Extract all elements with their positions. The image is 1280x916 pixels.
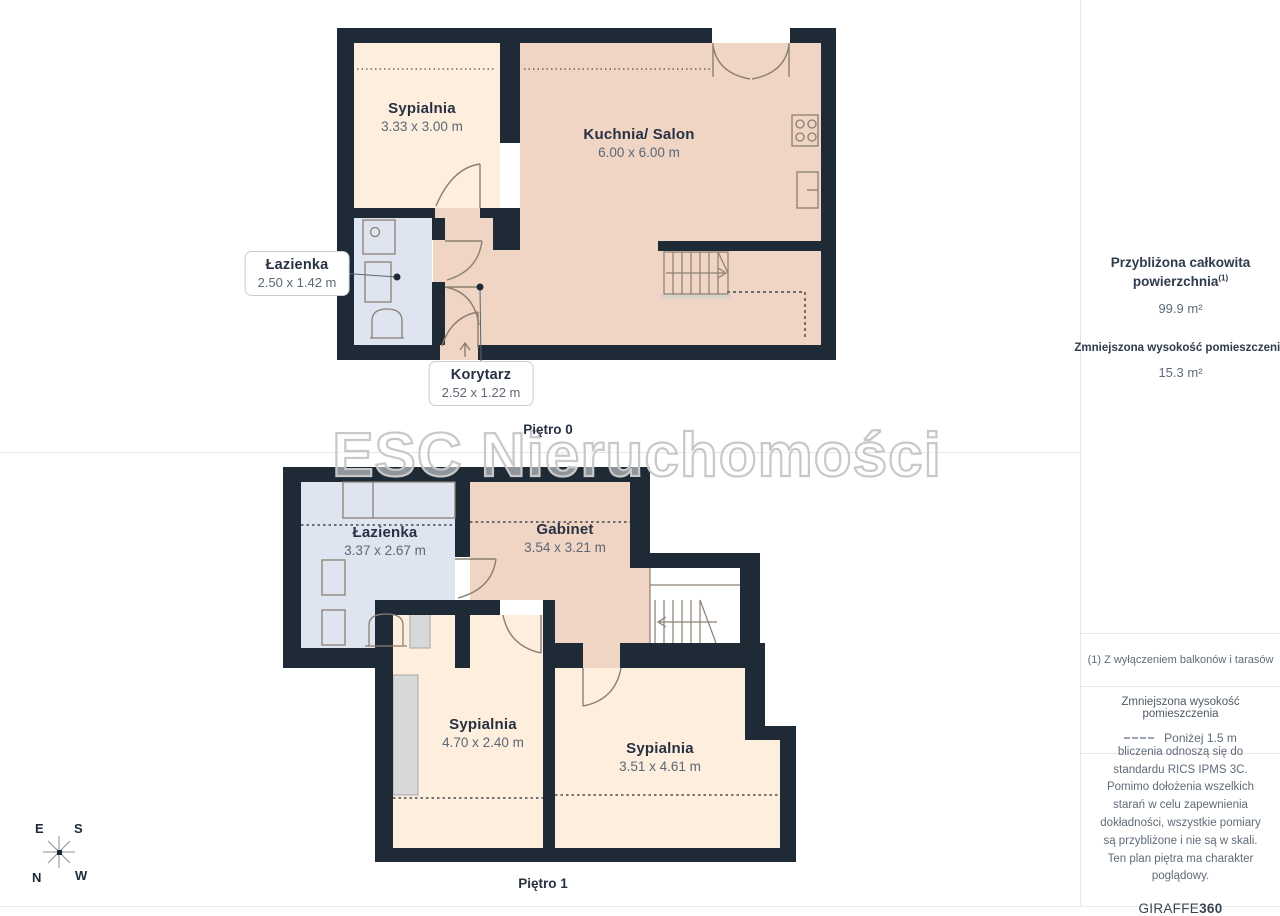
floor0-kitchen-living-area bbox=[520, 43, 821, 345]
disclaimer-text: bliczenia odnoszą się do standardu RICS … bbox=[1093, 744, 1268, 887]
room-dimensions: 2.50 x 1.42 m bbox=[258, 275, 337, 290]
reduced-height-dash-icon bbox=[1124, 737, 1154, 739]
washing-machine-icon bbox=[410, 610, 430, 648]
compass-south-label: S bbox=[74, 821, 83, 836]
reduced-height-title: Zmniejszona wysokość pomieszczenia bbox=[1074, 340, 1280, 357]
brand-logo: GIRAFFE360 bbox=[1138, 901, 1222, 916]
room-label-floor1-bedroom-right: Sypialnia 3.51 x 4.61 m bbox=[619, 740, 701, 774]
room-label-floor0-bathroom: Łazienka 2.50 x 1.42 m bbox=[245, 251, 350, 296]
room-name: Sypialnia bbox=[619, 740, 701, 757]
room-label-floor0-kitchen-living: Kuchnia/ Salon 6.00 x 6.00 m bbox=[583, 126, 694, 160]
floor0-bathroom-area bbox=[354, 218, 432, 345]
room-name: Łazienka bbox=[344, 524, 426, 541]
compass-north-label: N bbox=[32, 870, 41, 885]
room-dimensions: 3.51 x 4.61 m bbox=[619, 759, 701, 774]
floor1-landing-area bbox=[630, 568, 650, 643]
room-name: Sypialnia bbox=[442, 716, 524, 733]
floor-plan-page: { "page": { "watermark": "ESC Nieruchomo… bbox=[0, 0, 1280, 906]
room-name: Gabinet bbox=[524, 521, 606, 538]
total-area-title: Przybliżona całkowita powierzchnia(1) bbox=[1111, 253, 1251, 292]
floor0-hallway-opening bbox=[500, 250, 520, 345]
room-label-floor0-hallway: Korytarz 2.52 x 1.22 m bbox=[429, 361, 534, 406]
compass-icon: E S N W bbox=[18, 810, 102, 890]
legend-title: Zmniejszona wysokość pomieszczenia bbox=[1093, 696, 1268, 720]
room-dimensions: 6.00 x 6.00 m bbox=[583, 145, 694, 160]
room-dimensions: 4.70 x 2.40 m bbox=[442, 735, 524, 750]
floor0-caption: Piętro 0 bbox=[523, 422, 573, 437]
room-name: Kuchnia/ Salon bbox=[583, 126, 694, 143]
legend-row: Poniżej 1.5 m bbox=[1124, 731, 1237, 745]
brand-suffix: 360 bbox=[1199, 901, 1222, 916]
total-area-value: 99.9 m² bbox=[1158, 301, 1202, 316]
floor0-room-areas bbox=[354, 43, 821, 360]
room-dimensions: 3.33 x 3.00 m bbox=[381, 119, 463, 134]
compass-west-label: W bbox=[75, 868, 88, 883]
floor1-caption: Piętro 1 bbox=[518, 876, 568, 891]
wardrobe-icon bbox=[393, 675, 418, 795]
room-label-floor0-bedroom: Sypialnia 3.33 x 3.00 m bbox=[381, 100, 463, 134]
room-name: Korytarz bbox=[442, 367, 521, 383]
room-name: Łazienka bbox=[258, 257, 337, 273]
room-dimensions: 2.52 x 1.22 m bbox=[442, 385, 521, 400]
reduced-height-value: 15.3 m² bbox=[1158, 365, 1202, 380]
room-label-floor1-bathroom: Łazienka 3.37 x 2.67 m bbox=[344, 524, 426, 558]
sidebar-disclaimer-section: bliczenia odnoszą się do standardu RICS … bbox=[1081, 753, 1280, 906]
room-dimensions: 3.37 x 2.67 m bbox=[344, 543, 426, 558]
info-sidebar: Przybliżona całkowita powierzchnia(1) 99… bbox=[1080, 0, 1280, 906]
plans-area: Sypialnia 3.33 x 3.00 m Kuchnia/ Salon 6… bbox=[0, 0, 1080, 906]
room-dimensions: 3.54 x 3.21 m bbox=[524, 540, 606, 555]
room-name: Sypialnia bbox=[381, 100, 463, 117]
room-label-floor1-bedroom-left: Sypialnia 4.70 x 2.40 m bbox=[442, 716, 524, 750]
total-area-title-line1: Przybliżona całkowita bbox=[1111, 255, 1251, 270]
floor0-plan bbox=[330, 20, 850, 410]
footnote-marker: (1) bbox=[1218, 274, 1228, 283]
balconies-footnote: (1) Z wyłączeniem balkonów i tarasów bbox=[1088, 654, 1274, 666]
sidebar-summary-section: Przybliżona całkowita powierzchnia(1) 99… bbox=[1081, 0, 1280, 633]
total-area-title-line2: powierzchnia bbox=[1133, 274, 1219, 289]
agency-watermark: ESC Nieruchomości bbox=[332, 420, 942, 491]
room-label-floor1-office: Gabinet 3.54 x 3.21 m bbox=[524, 521, 606, 555]
brand-name: GIRAFFE bbox=[1138, 901, 1199, 916]
legend-value: Poniżej 1.5 m bbox=[1164, 731, 1237, 745]
compass-east-label: E bbox=[35, 821, 44, 836]
sidebar-footnote-section: (1) Z wyłączeniem balkonów i tarasów bbox=[1081, 633, 1280, 686]
